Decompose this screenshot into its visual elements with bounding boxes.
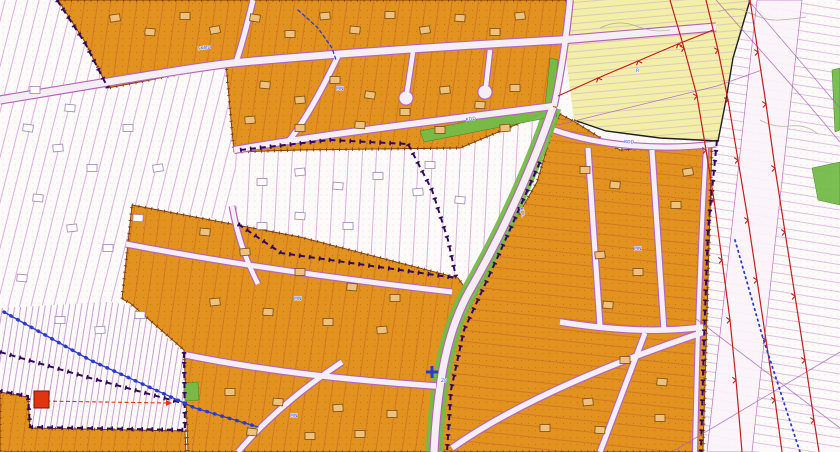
building-white (103, 245, 113, 252)
red-facility-symbol (34, 391, 49, 408)
building-orange (515, 12, 526, 20)
building-orange (250, 14, 261, 22)
building-orange (180, 13, 190, 20)
building-white (95, 326, 105, 334)
building-white (373, 173, 383, 180)
building-orange (260, 81, 271, 89)
building-orange (110, 14, 121, 22)
building-white (23, 124, 34, 132)
building-orange (305, 433, 315, 440)
building-orange (671, 202, 681, 209)
building-orange (225, 389, 235, 396)
building-orange (263, 308, 273, 316)
building-white (87, 165, 97, 172)
building-orange (455, 14, 465, 22)
building-white (413, 188, 424, 196)
zone-code-label: MN (336, 86, 343, 92)
building-white (123, 125, 133, 132)
building-white (17, 274, 28, 282)
zone-code-label: R (636, 68, 639, 74)
building-orange (440, 86, 451, 94)
building-orange (595, 251, 606, 259)
building-white (295, 212, 305, 220)
culdesac-bulb (479, 86, 492, 99)
building-white (343, 223, 353, 230)
building-orange (295, 96, 306, 104)
building-orange (400, 109, 410, 116)
building-orange (510, 85, 520, 92)
zoning-map-canvas[interactable]: 5KDDKDDKDLKDDMNMNMNMNRZP (0, 0, 840, 452)
building-orange (540, 425, 550, 432)
building-orange (295, 269, 305, 276)
building-orange (273, 398, 284, 406)
building-white (425, 162, 435, 169)
green-parcel-small (184, 382, 199, 401)
zone-code-label: MN (294, 296, 301, 302)
building-white (257, 179, 267, 186)
building-orange (245, 116, 256, 124)
zone-code-label: MN (634, 246, 641, 252)
building-orange (655, 415, 665, 422)
building-orange (247, 428, 258, 436)
building-orange (633, 269, 643, 276)
building-orange (490, 29, 500, 36)
building-orange (595, 426, 605, 434)
building-orange (500, 124, 511, 132)
building-white (30, 87, 40, 94)
building-white (295, 168, 306, 176)
building-white (53, 144, 64, 152)
building-orange (145, 28, 156, 36)
building-white (33, 194, 44, 202)
building-white (257, 223, 267, 230)
building-orange (365, 91, 376, 99)
zone-code-label: KDD (624, 139, 635, 146)
building-orange (320, 12, 331, 20)
building-orange (475, 101, 485, 109)
building-orange (200, 228, 211, 236)
building-orange (390, 295, 400, 302)
building-orange (350, 26, 361, 34)
building-orange (387, 411, 397, 418)
building-orange (583, 398, 594, 406)
building-orange (355, 431, 365, 438)
building-white (65, 104, 76, 112)
building-orange (285, 31, 295, 38)
map-viewport[interactable]: 5KDDKDDKDLKDDMNMNMNMNRZP (0, 0, 840, 452)
building-orange (420, 26, 431, 34)
building-orange (580, 167, 590, 174)
building-white (455, 196, 466, 204)
building-white (133, 214, 143, 222)
building-white (67, 224, 78, 232)
building-white (55, 317, 65, 324)
zone-code-label: ZP (441, 378, 447, 384)
building-white (333, 182, 344, 190)
building-orange (683, 168, 694, 176)
building-orange (435, 127, 445, 134)
building-orange (603, 301, 614, 309)
building-white (153, 164, 164, 172)
building-orange (385, 12, 395, 19)
building-orange (295, 125, 305, 132)
building-orange (347, 283, 358, 291)
building-orange (657, 378, 668, 386)
culdesac-bulb (400, 92, 413, 105)
building-orange (610, 181, 621, 189)
building-orange (330, 77, 340, 84)
building-orange (210, 298, 221, 306)
building-orange (333, 404, 343, 412)
zone-code-label: MN (290, 413, 297, 419)
building-orange (209, 26, 220, 35)
building-orange (355, 121, 365, 129)
building-orange (240, 248, 251, 256)
building-white (135, 312, 145, 319)
building-orange (620, 357, 630, 364)
building-orange (377, 326, 388, 334)
building-orange (323, 319, 333, 326)
